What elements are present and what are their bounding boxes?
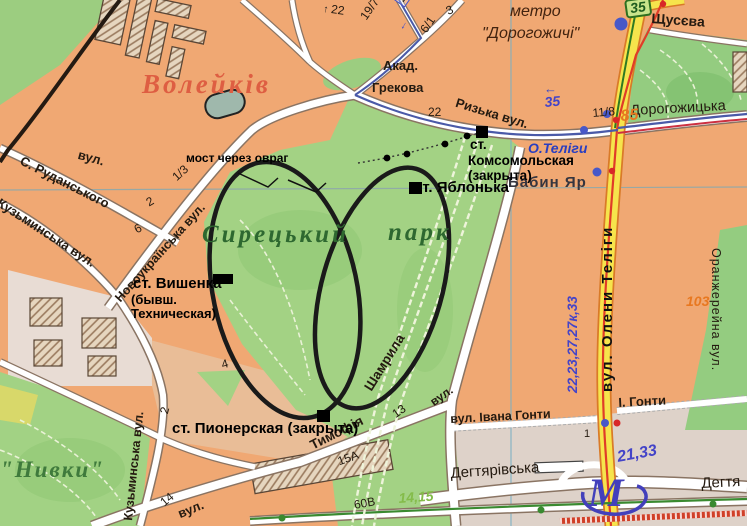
metro-entrance-dot [615,18,628,31]
metro-entrance-dot [580,126,588,134]
station-label-komsomolska-note: (закрыта) [468,169,532,183]
metro-entrance-dot [593,168,602,177]
number-103: 103 [686,294,709,309]
street-oranzhereina: Оранжерейна вул. [709,248,722,371]
park-label-park-word: парк [388,220,452,246]
tram-routes-vertical: 22,23,27,27к,33 [566,296,580,393]
district-label-nyvky: "Нивки" [0,458,105,482]
traffic-dot [614,420,621,427]
green-route-dot [279,515,286,522]
number-11-8: 11/8 [592,105,615,119]
street-dehtiarivska-right: Дегтя [701,474,741,492]
station-label-vyshenka-note2: Техническая) [131,307,216,321]
metro-label-line2: "Дорогожичі" [482,26,579,43]
street-shchusieva: Щусєва [651,11,705,29]
green-route-dot [538,507,545,514]
street-oleny-telihy: вул. Олени Теліги [600,226,616,392]
number-85: 85 [620,107,639,125]
district-label-voleikiv: Волейків [142,70,271,98]
traffic-dot [609,168,615,174]
park-texture-2 [397,248,453,372]
station-label-pionerska: ст. Пионерская (закрыта) [172,421,358,437]
station-label-vyshenka-note1: (бывш. [131,293,177,307]
route-35-blue: 35 [544,94,561,110]
building-right-edge [733,52,747,92]
annotation-bridge: мост через овраг [186,152,288,164]
metro-entrance-dot [601,419,609,427]
street-akad: Акад. [383,59,418,73]
green-route-dot [710,501,717,508]
street-hrekova: Грекова [372,81,423,95]
route-14-15: 14,15 [398,489,434,506]
arrow-left-icon: ← [544,82,557,96]
number-22-park: 22 [428,106,441,118]
station-label-vyshenka: ст. Вишенка [133,276,222,292]
number-1: 1 [584,429,590,440]
metro-label-line1: метро [510,4,561,21]
traffic-dot [660,1,666,7]
station-label-komsomolska-st: ст. [470,138,487,152]
number-22-top: 22 [330,3,345,17]
street-i-honty: І. Гонти [618,394,666,410]
map-canvas: М Волейків Сирецький парк "Нивки" Бабин … [0,0,747,526]
park-label-syretskyi: Сирецький [202,222,349,248]
station-label-komsomolska-name: Комсомольская [468,154,574,168]
